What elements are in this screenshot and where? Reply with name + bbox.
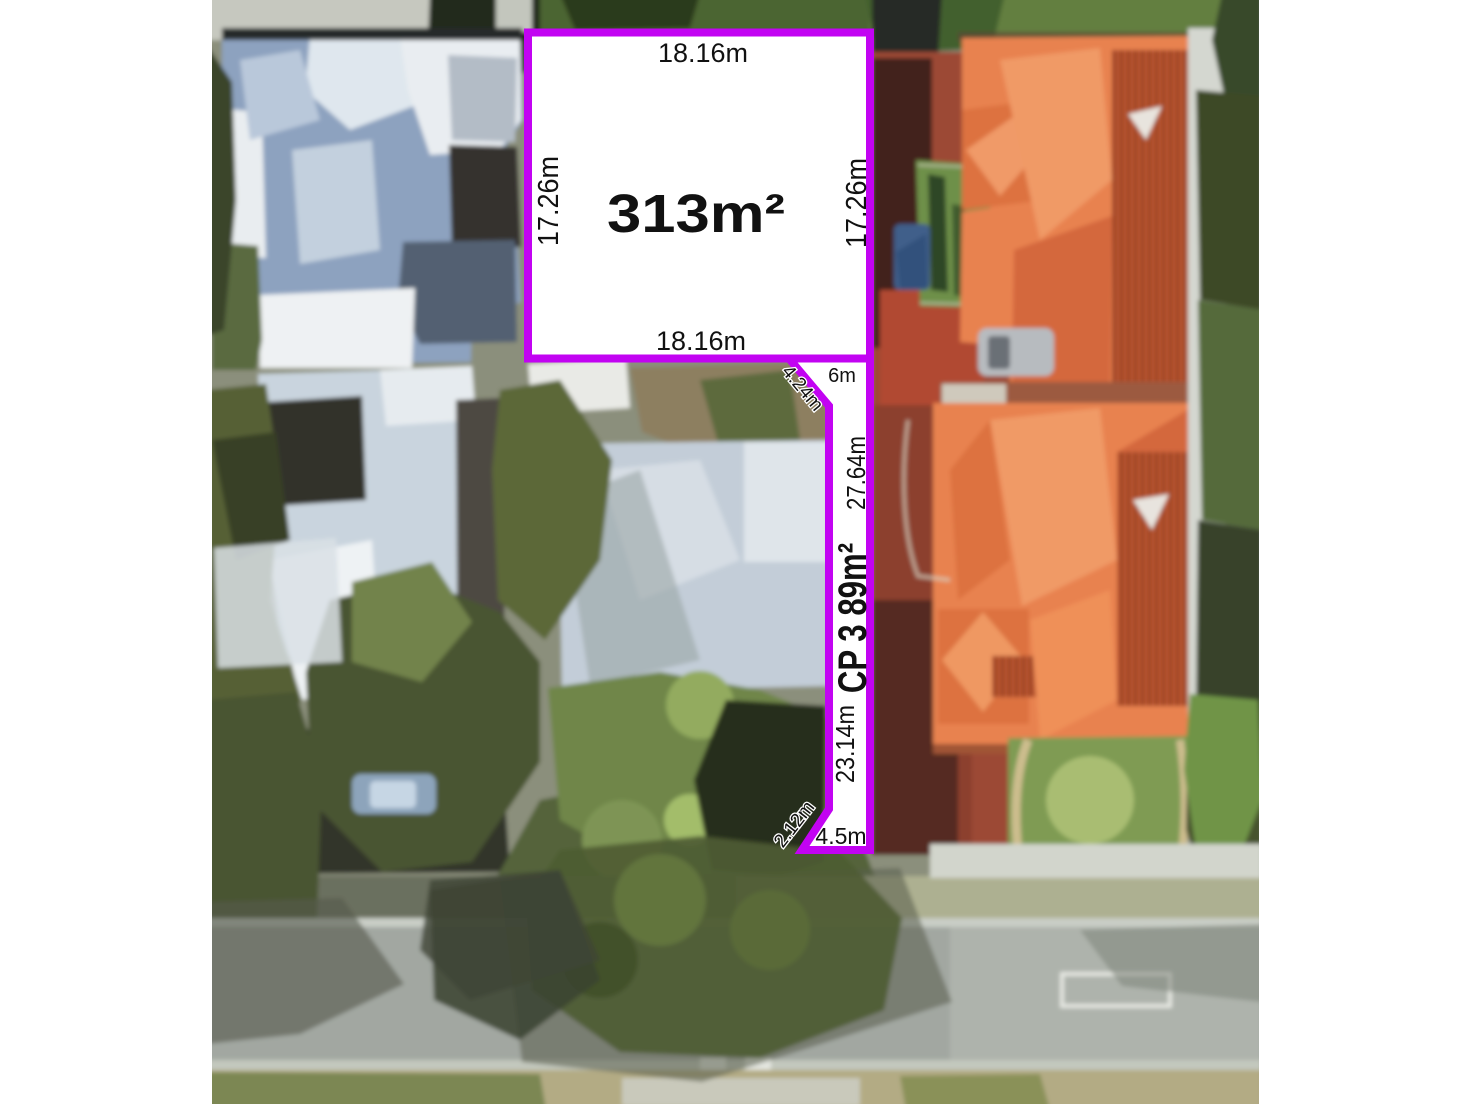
svg-text:4.5m: 4.5m (815, 823, 866, 849)
svg-text:CP 3 89m²: CP 3 89m² (830, 543, 875, 693)
svg-text:17.26m: 17.26m (841, 158, 873, 248)
svg-text:6m: 6m (828, 365, 856, 387)
svg-text:27.64m: 27.64m (841, 436, 871, 510)
svg-text:313m²: 313m² (607, 184, 785, 244)
svg-text:18.16m: 18.16m (658, 38, 748, 68)
svg-text:23.14m: 23.14m (830, 705, 860, 783)
svg-text:18.16m: 18.16m (656, 326, 746, 356)
svg-text:17.26m: 17.26m (533, 156, 565, 246)
